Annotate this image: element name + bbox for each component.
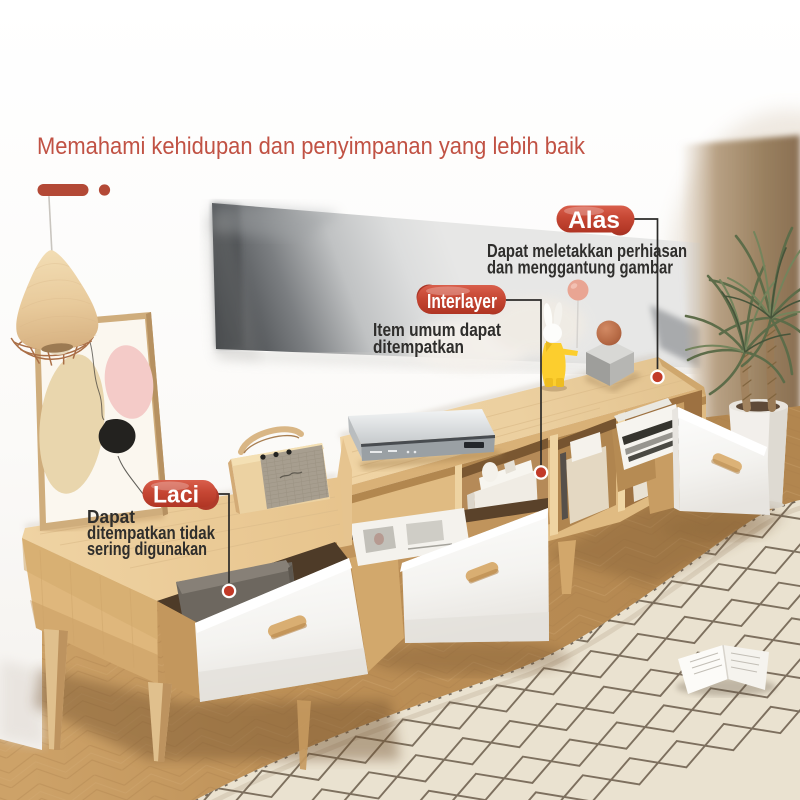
svg-text:ditempatkan: ditempatkan <box>373 337 464 357</box>
svg-text:Laci: Laci <box>153 482 199 509</box>
svg-text:sering digunakan: sering digunakan <box>87 539 207 559</box>
svg-text:Alas: Alas <box>568 207 620 234</box>
svg-text:Memahami kehidupan dan penyimp: Memahami kehidupan dan penyimpanan yang … <box>37 133 586 160</box>
svg-text:dan menggantung gambar: dan menggantung gambar <box>487 258 673 278</box>
svg-text:Interlayer: Interlayer <box>427 291 497 313</box>
